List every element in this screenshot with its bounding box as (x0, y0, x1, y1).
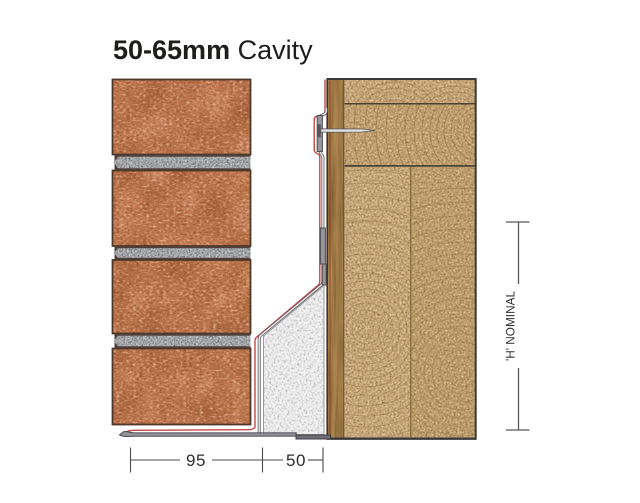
svg-text:50: 50 (286, 451, 306, 470)
svg-text:95: 95 (186, 451, 206, 470)
svg-text:'H' NOMINAL: 'H' NOMINAL (504, 291, 518, 361)
svg-text:50-65mm Cavity: 50-65mm Cavity (113, 35, 313, 65)
